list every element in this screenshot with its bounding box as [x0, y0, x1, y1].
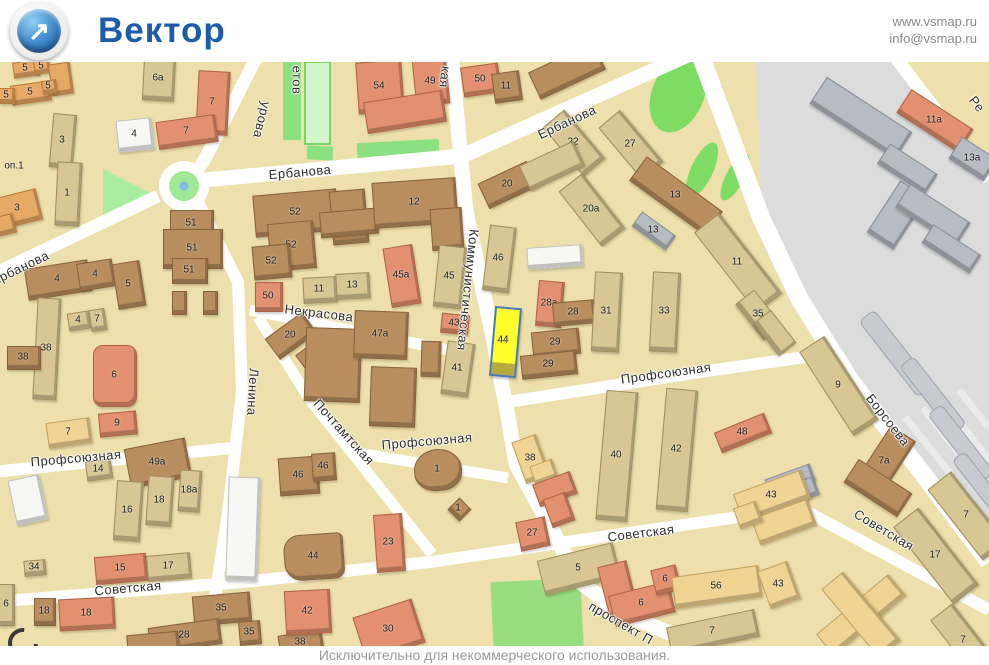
building-number: 44: [307, 551, 318, 562]
building-number: 7: [709, 626, 715, 637]
building-number: 44: [497, 335, 508, 346]
building-number: 46: [492, 253, 503, 264]
building-number: 11: [314, 284, 324, 295]
footer: Исключительно для некоммерческого исполь…: [0, 646, 989, 665]
building-number: 18: [38, 606, 49, 617]
building-number: 17: [929, 550, 940, 561]
lawn-strip: [305, 62, 330, 144]
building-number: 54: [373, 81, 384, 92]
building-number: 46: [292, 470, 303, 481]
building-number: 35: [243, 627, 254, 638]
building-number: 47a: [372, 329, 389, 340]
building-number: 13: [647, 225, 658, 236]
building-number: 52: [265, 256, 276, 267]
building-number: 48: [736, 427, 747, 438]
building-number: 5: [45, 81, 51, 92]
building-number: 41: [451, 363, 462, 374]
building-number: 7: [963, 510, 969, 521]
building-number: 20a: [583, 204, 600, 215]
building-number: 6: [662, 574, 668, 585]
fountain-dot: [180, 182, 189, 191]
building[interactable]: [172, 291, 187, 315]
brand-wordmark: Вектор: [98, 11, 226, 51]
building-number: 45a: [393, 270, 410, 281]
building-number: 1: [455, 503, 461, 514]
building-number: 49a: [149, 457, 166, 468]
building-number: 7a: [878, 456, 889, 467]
building-number: 51: [185, 218, 196, 229]
building-number: 3: [59, 135, 65, 146]
building-number: 33: [658, 306, 669, 317]
building-number: 5: [38, 62, 44, 72]
map-canvas[interactable]: 555553316a77451515144547383869749a141618…: [0, 62, 989, 648]
building-number: 5: [3, 90, 9, 101]
building-number: 20: [501, 179, 512, 190]
building-number: 7: [94, 314, 100, 325]
building-number: 6a: [152, 73, 163, 84]
building-number: 15: [114, 563, 125, 574]
building-number: 12: [408, 197, 419, 208]
building-number: 13: [669, 190, 680, 201]
building-number: 43: [765, 490, 776, 501]
building-number: 18: [80, 608, 91, 619]
building-number: 5: [22, 63, 28, 74]
building-number: 23: [382, 537, 393, 548]
building-number: 7: [209, 97, 215, 108]
building-number: 52: [289, 207, 300, 218]
logo-orb: ↗: [17, 9, 61, 53]
building-number: 51: [186, 243, 197, 254]
roundabout: [159, 161, 209, 211]
building-number: 29: [549, 337, 560, 348]
building[interactable]: [319, 208, 379, 239]
building-number: 38: [40, 343, 51, 354]
building-number: 13a: [964, 153, 981, 164]
building-number: 50: [262, 291, 273, 302]
arrow-icon: ↗: [17, 9, 61, 53]
building-number: 9: [835, 380, 841, 391]
building-number: 30: [382, 624, 393, 635]
website-url: www.vsmap.ru: [889, 13, 977, 30]
building-number: 28: [567, 307, 578, 318]
brand-logo[interactable]: ↗: [10, 2, 68, 60]
building-number: 18: [153, 495, 164, 506]
building-number: 51: [183, 265, 194, 276]
street-label: Ленина: [244, 368, 261, 416]
building-number: 40: [610, 450, 621, 461]
building-number: 35: [215, 603, 226, 614]
building-number: 1: [434, 464, 440, 475]
building-number: 49: [424, 76, 435, 87]
building-number: 1: [64, 188, 70, 199]
building-number: 7: [960, 635, 966, 646]
building-number: 46: [317, 461, 328, 472]
building-number: 4: [54, 274, 60, 285]
building-number: 7: [183, 126, 189, 137]
building-number: 20: [284, 330, 295, 341]
header: ↗ Вектор www.vsmap.ru info@vsmap.ru: [0, 0, 989, 62]
building-number: 27: [624, 139, 635, 150]
building-number: 6: [638, 598, 644, 609]
building-number: 5: [125, 279, 131, 290]
building[interactable]: [225, 476, 261, 581]
building-number: 4: [75, 315, 81, 326]
building-number: 50: [474, 74, 485, 85]
building-number: 31: [600, 306, 611, 317]
building-number: 38: [524, 453, 535, 464]
building-number: 11a: [926, 115, 942, 126]
building-number: 27: [526, 528, 537, 539]
building-number: 5: [27, 87, 33, 98]
license-notice: Исключительно для некоммерческого исполь…: [0, 646, 989, 663]
building-number: 18a: [181, 485, 198, 496]
building-number: 38: [17, 352, 28, 363]
building-number: 42: [301, 606, 312, 617]
building-number: 29: [542, 359, 553, 370]
building[interactable]: [526, 244, 583, 270]
building-number: 6: [3, 599, 9, 610]
map-note: оп.1: [4, 161, 23, 172]
building-number: 14: [92, 464, 103, 475]
lawn-strip: [307, 145, 334, 160]
building[interactable]: [203, 291, 218, 315]
building-number: 42: [670, 444, 681, 455]
building-number: 43: [772, 579, 783, 590]
building-number: 5: [575, 563, 581, 574]
building[interactable]: [369, 366, 417, 428]
building-number: 6: [111, 370, 117, 381]
building-number: 4: [131, 129, 137, 140]
building-number: 16: [121, 505, 132, 516]
building-number: 45: [443, 271, 454, 282]
building-number: 11: [501, 81, 511, 92]
building-number: 13: [346, 280, 357, 291]
email-address: info@vsmap.ru: [889, 30, 977, 47]
building-number: 3: [14, 203, 20, 214]
building-number: 9: [114, 418, 120, 429]
contact-links: www.vsmap.ru info@vsmap.ru: [889, 13, 977, 47]
street-label: етов: [290, 66, 305, 95]
building-number: 4: [92, 269, 98, 280]
building-number: 7: [65, 427, 71, 438]
app-window: ↗ Вектор www.vsmap.ru info@vsmap.ru: [0, 0, 989, 665]
building-number: 28: [178, 630, 189, 641]
building-number: 11: [732, 257, 742, 268]
building[interactable]: [430, 207, 465, 251]
building-number: 56: [710, 581, 721, 592]
building-number: 17: [162, 561, 173, 572]
building[interactable]: [420, 341, 441, 378]
street-label: кая: [436, 65, 454, 88]
building-number: 34: [28, 562, 39, 573]
